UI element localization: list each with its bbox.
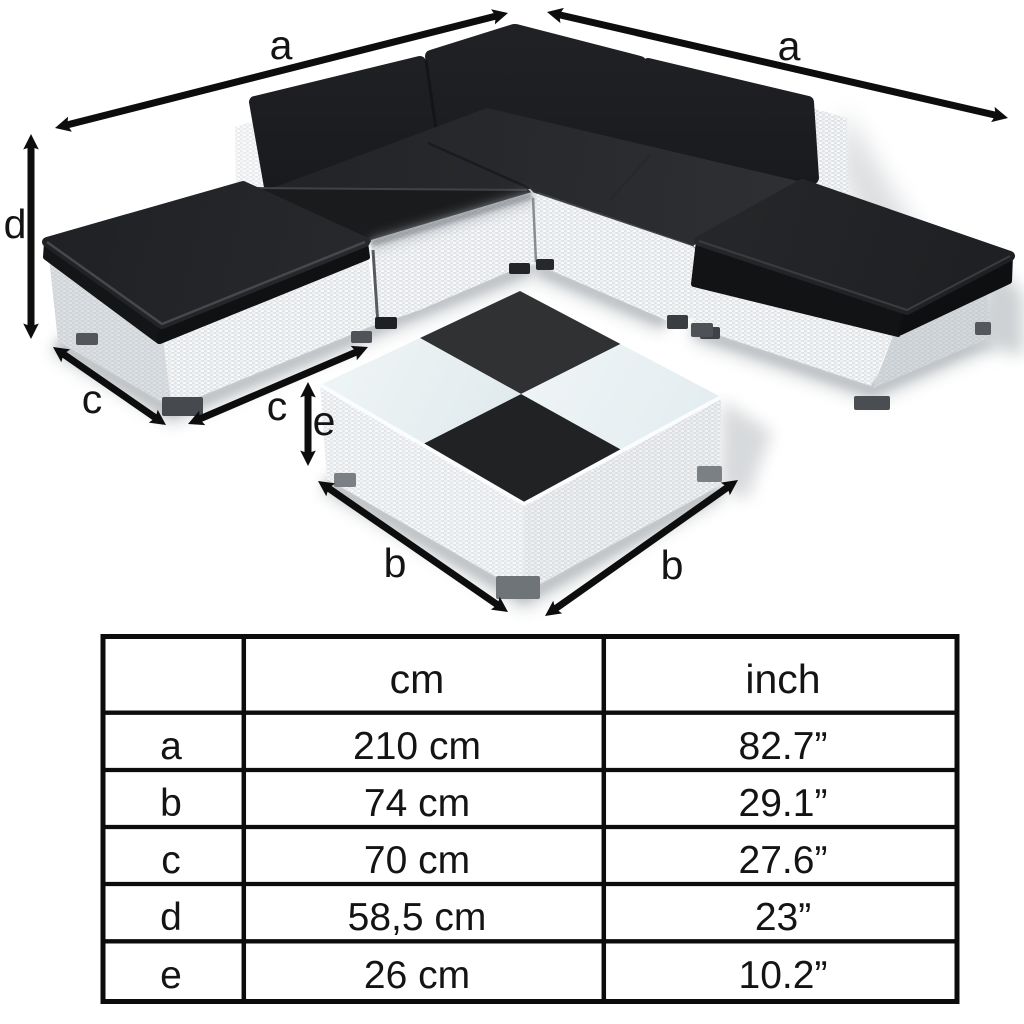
svg-text:210 cm: 210 cm bbox=[353, 725, 481, 768]
svg-text:27.6”: 27.6” bbox=[739, 839, 828, 882]
svg-text:23”: 23” bbox=[755, 896, 811, 939]
svg-text:a: a bbox=[778, 23, 801, 69]
svg-text:d: d bbox=[160, 896, 182, 939]
svg-text:e: e bbox=[313, 398, 336, 444]
svg-text:26 cm: 26 cm bbox=[364, 954, 470, 997]
svg-text:e: e bbox=[160, 954, 182, 997]
svg-text:29.1”: 29.1” bbox=[739, 782, 828, 825]
svg-text:a: a bbox=[160, 725, 182, 768]
svg-text:c: c bbox=[82, 376, 103, 422]
svg-text:b: b bbox=[160, 782, 182, 825]
svg-text:10.2”: 10.2” bbox=[739, 954, 828, 997]
svg-text:74 cm: 74 cm bbox=[364, 782, 470, 825]
svg-text:b: b bbox=[384, 540, 407, 586]
svg-text:70 cm: 70 cm bbox=[364, 839, 470, 882]
svg-text:c: c bbox=[161, 839, 181, 882]
svg-text:cm: cm bbox=[390, 656, 445, 702]
svg-text:82.7”: 82.7” bbox=[739, 725, 828, 768]
svg-text:c: c bbox=[267, 383, 288, 429]
svg-text:inch: inch bbox=[745, 656, 820, 702]
svg-text:a: a bbox=[270, 22, 293, 68]
svg-text:b: b bbox=[661, 542, 684, 588]
svg-text:58,5 cm: 58,5 cm bbox=[348, 896, 487, 939]
svg-text:d: d bbox=[4, 201, 27, 247]
